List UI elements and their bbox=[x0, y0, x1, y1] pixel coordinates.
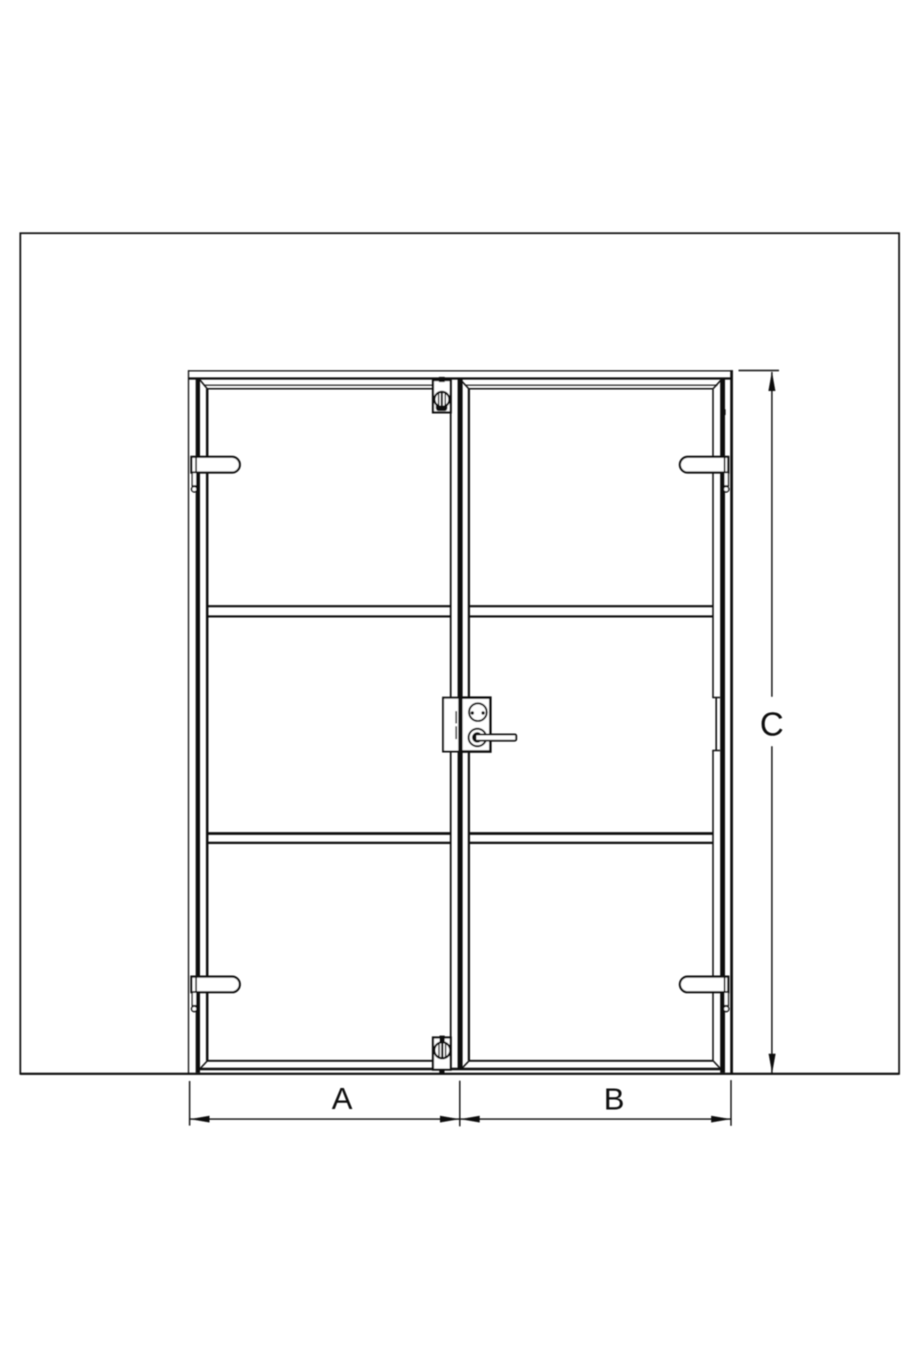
svg-text:A: A bbox=[332, 1081, 353, 1116]
svg-text:C: C bbox=[760, 705, 784, 742]
svg-text:B: B bbox=[604, 1081, 625, 1116]
